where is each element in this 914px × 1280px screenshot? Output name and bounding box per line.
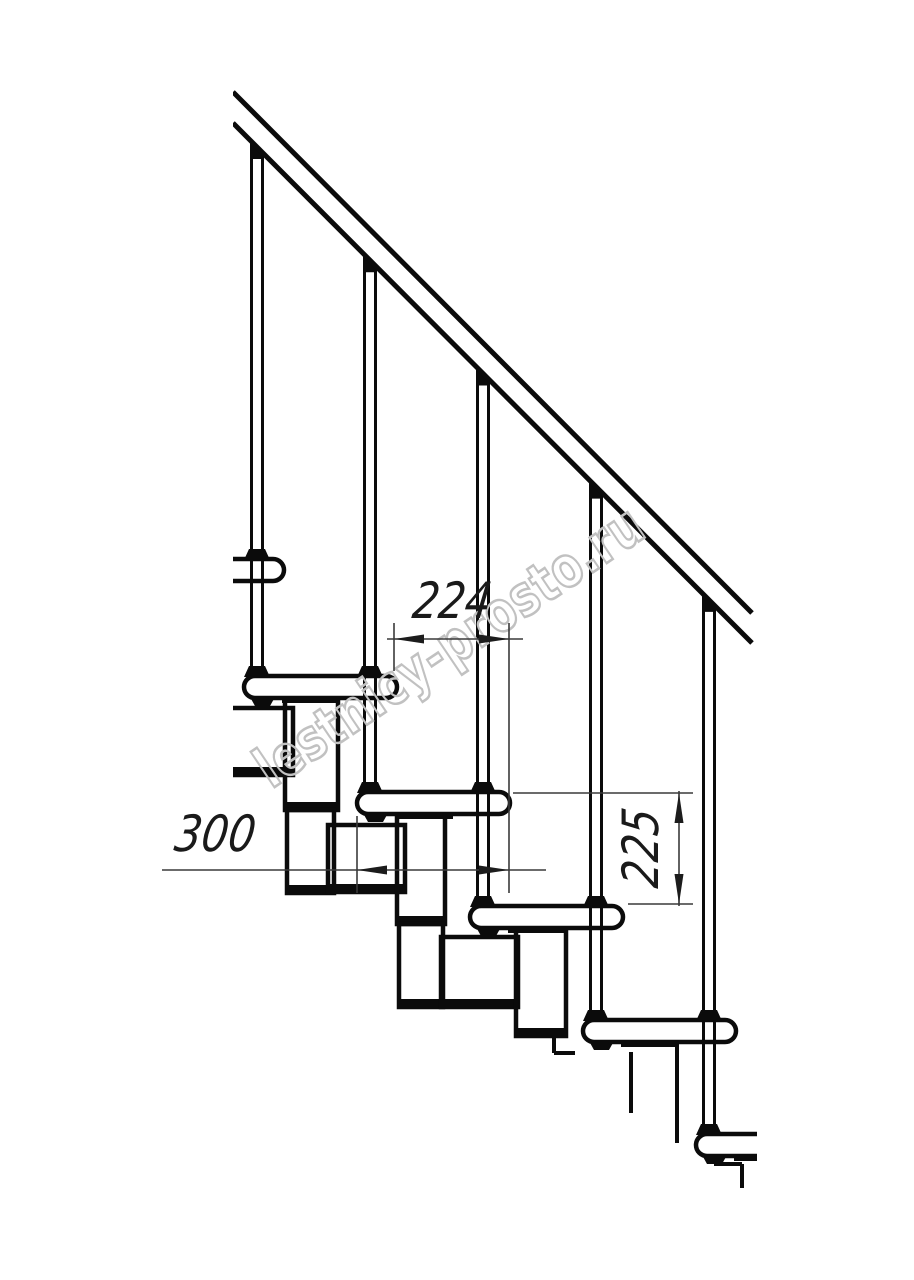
tread-6 bbox=[696, 1134, 849, 1156]
handrail-upper-edge bbox=[233, 92, 752, 613]
tread-mount-nub bbox=[363, 813, 388, 822]
baluster-foot bbox=[583, 1010, 609, 1021]
tread-mount-nub bbox=[250, 697, 275, 706]
tread-mount-strip bbox=[508, 927, 566, 933]
baluster-5 bbox=[696, 595, 722, 1135]
dimension-label-300: 300 bbox=[171, 804, 259, 863]
watermark-text: lestnicy-prosto.ru bbox=[243, 493, 657, 801]
tread-mount-strip bbox=[395, 813, 453, 819]
staircase-drawing-page: lestnicy-prosto.ru 224300225 bbox=[0, 0, 914, 1280]
handrail-lower-edge bbox=[233, 123, 752, 643]
dimension-arrowhead-right bbox=[479, 866, 509, 875]
tread-mount-nub bbox=[476, 927, 501, 936]
tread-mount-strip bbox=[169, 580, 227, 586]
support-module-bottom-band bbox=[289, 885, 332, 892]
baluster-1 bbox=[244, 142, 270, 677]
support-module-bottom-band bbox=[330, 884, 403, 891]
tread-mount-nub bbox=[137, 580, 162, 589]
baluster-foot bbox=[357, 782, 383, 793]
support-module-bottom-band bbox=[443, 999, 516, 1006]
dimension-label-224: 224 bbox=[409, 571, 495, 630]
support-module-box bbox=[441, 937, 518, 1007]
baluster-foot bbox=[470, 896, 496, 907]
tread-mount-strip bbox=[621, 1041, 679, 1047]
support-module-box bbox=[399, 924, 443, 1007]
dimension-arrowhead-up bbox=[675, 793, 684, 823]
support-module-bottom-band bbox=[401, 999, 441, 1006]
dimension-label-225: 225 bbox=[611, 804, 670, 890]
dimension-arrowhead-down bbox=[675, 874, 684, 904]
baluster-foot bbox=[244, 666, 270, 677]
support-module-box bbox=[328, 825, 405, 892]
staircase-technical-drawing: lestnicy-prosto.ru 224300225 bbox=[0, 0, 914, 1280]
baluster-collar bbox=[583, 896, 609, 907]
baluster-collar bbox=[696, 1010, 722, 1021]
support-module-bottom-band bbox=[518, 1028, 564, 1035]
tread-clip-group bbox=[696, 1134, 849, 1164]
support-module-box bbox=[516, 925, 566, 1036]
watermark-layer: lestnicy-prosto.ru bbox=[243, 493, 657, 801]
baluster-foot bbox=[696, 1124, 722, 1135]
baluster-collar bbox=[244, 549, 270, 560]
tread-mount-strip bbox=[734, 1155, 792, 1161]
baluster-collar bbox=[470, 782, 496, 793]
tread-mount-nub bbox=[589, 1041, 614, 1050]
